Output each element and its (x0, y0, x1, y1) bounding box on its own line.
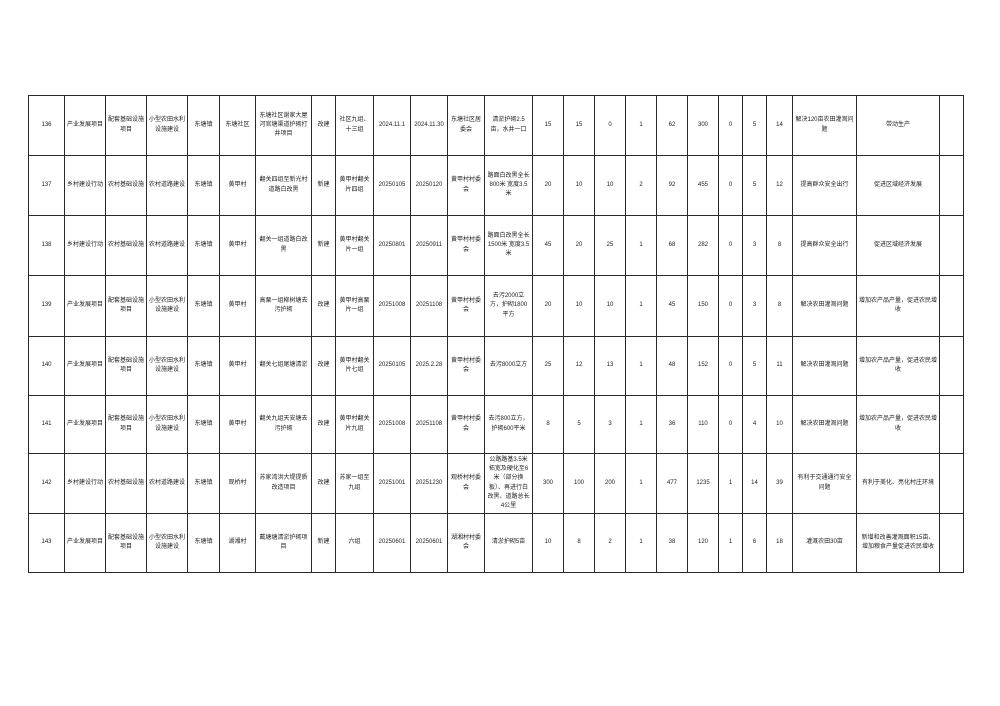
table-cell: 社区九组、十三组 (336, 96, 374, 156)
table-cell: 0 (719, 216, 743, 276)
table-cell: 翻关四组至新光村道路白改黑 (256, 156, 312, 216)
table-cell: 解决农田灌溉问题 (793, 276, 857, 337)
table-cell: 清淤护砌2.5亩，水井一口 (485, 96, 533, 156)
table-cell: 黄甲村村委会 (448, 337, 485, 396)
table-cell: 东塘镇 (188, 396, 220, 454)
table-cell: 14 (767, 96, 793, 156)
table-cell: 新建 (312, 514, 336, 573)
table-cell: 去污800立方，护砌600平米 (485, 396, 533, 454)
table-cell: 20251108 (411, 276, 448, 337)
table-row: 140产业发展项目配套基础设施项目小型农田水利设施建设东塘镇黄甲村翻关七组尾塘清… (29, 337, 964, 396)
table-cell: 有利于交通通行安全问题 (793, 454, 857, 514)
table-cell: 0 (719, 156, 743, 216)
table-cell: 0 (719, 396, 743, 454)
table-cell: 清淤护砌5亩 (485, 514, 533, 573)
table-cell: 152 (688, 337, 719, 396)
table-cell: 300 (688, 96, 719, 156)
table-cell: 乡村建设行动 (65, 216, 106, 276)
table-cell: 东塘社区谢家大屋河官塘渠道护砌打井项目 (256, 96, 312, 156)
table-cell: 5 (743, 96, 767, 156)
table-cell: 黄甲村村委会 (448, 276, 485, 337)
table-cell: 14 (743, 454, 767, 514)
table-cell: 黄甲村 (220, 156, 256, 216)
row-number-cell: 143 (29, 514, 65, 573)
table-cell: 戴塘塘清淤护砌项目 (256, 514, 312, 573)
table-cell: 1 (626, 454, 657, 514)
table-row: 136产业发展项目配套基础设施项目小型农田水利设施建设东塘镇东塘社区东塘社区谢家… (29, 96, 964, 156)
table-cell: 2 (595, 514, 626, 573)
table-cell: 3 (743, 276, 767, 337)
table-cell: 20250105 (374, 337, 411, 396)
table-cell: 翻关一组道路白改黑 (256, 216, 312, 276)
table-cell: 农村基础设施 (106, 454, 147, 514)
table-cell: 20 (533, 276, 564, 337)
table-cell: 配套基础设施项目 (106, 337, 147, 396)
table-cell: 0 (719, 337, 743, 396)
table-cell: 产业发展项目 (65, 396, 106, 454)
table-cell: 小型农田水利设施建设 (147, 396, 188, 454)
table-cell: 湖湘村 (220, 514, 256, 573)
table-cell (940, 276, 964, 337)
row-number-cell: 141 (29, 396, 65, 454)
table-cell: 0 (595, 96, 626, 156)
table-cell: 东塘社区 (220, 96, 256, 156)
table-cell: 200 (595, 454, 626, 514)
table-cell: 观桥村村委会 (448, 454, 485, 514)
table-cell: 3 (595, 396, 626, 454)
table-cell (940, 156, 964, 216)
table-cell: 提高群众安全出行 (793, 156, 857, 216)
table-cell: 有利于美化、亮化村庄环境 (857, 454, 940, 514)
table-row: 137乡村建设行动农村基础设施农村道路建设东塘镇黄甲村翻关四组至新光村道路白改黑… (29, 156, 964, 216)
table-cell: 20251008 (374, 396, 411, 454)
table-cell: 去污2000立方，护砌1800平方 (485, 276, 533, 337)
table-cell: 改建 (312, 276, 336, 337)
table-cell: 路面白改黑全长800米 宽度3.5米 (485, 156, 533, 216)
table-cell: 1 (626, 96, 657, 156)
table-row: 142乡村建设行动农村基础设施农村道路建设东塘镇观桥村苏家湾洪大堤提质改造项目改… (29, 454, 964, 514)
table-cell: 10 (564, 156, 595, 216)
table-cell: 提高群众安全出行 (793, 216, 857, 276)
table-cell: 12 (767, 156, 793, 216)
table-cell: 新建 (312, 156, 336, 216)
table-cell: 11 (767, 337, 793, 396)
row-number-cell: 136 (29, 96, 65, 156)
table-cell: 六组 (336, 514, 374, 573)
table-cell: 5 (743, 156, 767, 216)
table-cell: 477 (657, 454, 688, 514)
table-cell: 2024.11.1 (374, 96, 411, 156)
table-cell: 黄甲村村委会 (448, 156, 485, 216)
table-cell: 配套基础设施项目 (106, 96, 147, 156)
table-cell: 产业发展项目 (65, 96, 106, 156)
table-cell: 黄甲村 (220, 337, 256, 396)
table-cell: 黄甲村村委会 (448, 216, 485, 276)
table-cell: 282 (688, 216, 719, 276)
table-cell: 农村基础设施 (106, 156, 147, 216)
table-cell: 4 (743, 396, 767, 454)
table-cell: 东塘镇 (188, 96, 220, 156)
table-cell: 2025.2.28 (411, 337, 448, 396)
table-cell: 10 (595, 276, 626, 337)
document-page: 136产业发展项目配套基础设施项目小型农田水利设施建设东塘镇东塘社区东塘社区谢家… (0, 0, 1000, 706)
table-cell: 湖湘村村委会 (448, 514, 485, 573)
table-cell: 小型农田水利设施建设 (147, 514, 188, 573)
table-cell: 36 (657, 396, 688, 454)
table-cell: 45 (533, 216, 564, 276)
table-cell: 新增和改善灌溉面积15亩、增加粮食产量促进农民增收 (857, 514, 940, 573)
table-cell: 小型农田水利设施建设 (147, 276, 188, 337)
table-cell: 东塘镇 (188, 337, 220, 396)
table-cell: 促进区域经济发展 (857, 156, 940, 216)
row-number-cell: 139 (29, 276, 65, 337)
table-cell: 配套基础设施项目 (106, 514, 147, 573)
row-number-cell: 137 (29, 156, 65, 216)
table-cell: 3 (743, 216, 767, 276)
table-cell: 10 (767, 396, 793, 454)
row-number-cell: 142 (29, 454, 65, 514)
table-cell: 带动生产 (857, 96, 940, 156)
table-cell: 92 (657, 156, 688, 216)
table-cell: 20250911 (411, 216, 448, 276)
table-cell: 68 (657, 216, 688, 276)
table-row: 143产业发展项目配套基础设施项目小型农田水利设施建设东塘镇湖湘村戴塘塘清淤护砌… (29, 514, 964, 573)
table-cell: 6 (743, 514, 767, 573)
table-cell: 13 (595, 337, 626, 396)
table-cell: 10 (564, 276, 595, 337)
table-cell: 改建 (312, 337, 336, 396)
table-cell: 产业发展项目 (65, 514, 106, 573)
table-cell: 8 (564, 514, 595, 573)
table-cell: 1235 (688, 454, 719, 514)
table-cell: 20250601 (374, 514, 411, 573)
table-cell (940, 454, 964, 514)
table-cell: 去污8000立方 (485, 337, 533, 396)
table-cell: 东塘镇 (188, 156, 220, 216)
table-cell: 改建 (312, 454, 336, 514)
table-cell: 高栗一组柳树塘去污护砌 (256, 276, 312, 337)
table-cell: 东塘镇 (188, 454, 220, 514)
table-cell: 小型农田水利设施建设 (147, 96, 188, 156)
table-cell: 20251230 (411, 454, 448, 514)
table-cell: 增加农产品产量，促进农民增收 (857, 276, 940, 337)
table-cell: 20251108 (411, 396, 448, 454)
table-cell: 公路路基3.5米拓宽及硬化至6米（部分换板）、再进行白改黑、道路总长4公里 (485, 454, 533, 514)
table-cell: 62 (657, 96, 688, 156)
table-cell: 1 (626, 276, 657, 337)
table-cell: 黄甲村翻关片七组 (336, 337, 374, 396)
table-cell: 农村道路建设 (147, 216, 188, 276)
table-cell (940, 396, 964, 454)
table-cell: 小型农田水利设施建设 (147, 337, 188, 396)
table-cell: 100 (564, 454, 595, 514)
row-number-cell: 138 (29, 216, 65, 276)
table-row: 139产业发展项目配套基础设施项目小型农田水利设施建设东塘镇黄甲村高栗一组柳树塘… (29, 276, 964, 337)
table-cell: 10 (533, 514, 564, 573)
table-cell: 2024.11.30 (411, 96, 448, 156)
table-cell: 东塘镇 (188, 216, 220, 276)
table-cell: 苏家湾洪大堤提质改造项目 (256, 454, 312, 514)
table-cell: 黄甲村高栗片一组 (336, 276, 374, 337)
table-cell: 38 (657, 514, 688, 573)
table-cell: 5 (564, 396, 595, 454)
table-cell: 翻关九组天安塘去污护砌 (256, 396, 312, 454)
table-cell: 8 (533, 396, 564, 454)
table-cell: 黄甲村翻关片九组 (336, 396, 374, 454)
table-cell (940, 514, 964, 573)
table-cell: 增加农产品产量，促进农民增收 (857, 396, 940, 454)
table-cell: 0 (719, 276, 743, 337)
table-row: 141产业发展项目配套基础设施项目小型农田水利设施建设东塘镇黄甲村翻关九组天安塘… (29, 396, 964, 454)
table-cell: 1 (626, 337, 657, 396)
table-cell: 25 (533, 337, 564, 396)
table-cell: 改建 (312, 396, 336, 454)
table-cell: 300 (533, 454, 564, 514)
table-cell: 18 (767, 514, 793, 573)
table-cell: 39 (767, 454, 793, 514)
table-cell: 翻关七组尾塘清淤 (256, 337, 312, 396)
table-cell: 2 (626, 156, 657, 216)
project-table: 136产业发展项目配套基础设施项目小型农田水利设施建设东塘镇东塘社区东塘社区谢家… (28, 95, 964, 573)
table-cell: 东塘社区居委会 (448, 96, 485, 156)
table-cell: 产业发展项目 (65, 337, 106, 396)
table-cell: 配套基础设施项目 (106, 276, 147, 337)
row-number-cell: 140 (29, 337, 65, 396)
table-cell: 20 (564, 216, 595, 276)
table-cell: 观桥村 (220, 454, 256, 514)
table-cell: 乡村建设行动 (65, 454, 106, 514)
table-cell: 解决120亩农田灌溉问题 (793, 96, 857, 156)
table-cell: 15 (533, 96, 564, 156)
table-cell: 20250120 (411, 156, 448, 216)
table-cell: 1 (719, 514, 743, 573)
table-cell: 20250105 (374, 156, 411, 216)
table-cell: 黄甲村 (220, 216, 256, 276)
table-cell: 1 (719, 454, 743, 514)
table-cell: 黄甲村翻关片四组 (336, 156, 374, 216)
table-cell: 20251008 (374, 276, 411, 337)
table-cell: 灌溉农田30亩 (793, 514, 857, 573)
table-cell: 配套基础设施项目 (106, 396, 147, 454)
table-cell: 改建 (312, 96, 336, 156)
table-cell: 1 (626, 396, 657, 454)
table-cell: 0 (719, 96, 743, 156)
table-cell: 农村道路建设 (147, 454, 188, 514)
table-cell: 20251001 (374, 454, 411, 514)
table-cell: 120 (688, 514, 719, 573)
table-cell: 20250601 (411, 514, 448, 573)
table-cell: 455 (688, 156, 719, 216)
table-cell: 苏家一组至九组 (336, 454, 374, 514)
table-cell: 12 (564, 337, 595, 396)
table-cell: 农村基础设施 (106, 216, 147, 276)
table-cell: 黄甲村 (220, 276, 256, 337)
table-cell: 110 (688, 396, 719, 454)
table-cell: 25 (595, 216, 626, 276)
table-cell: 150 (688, 276, 719, 337)
table-cell: 解决农田灌溉问题 (793, 396, 857, 454)
table-cell: 1 (626, 216, 657, 276)
table-cell: 黄甲村村委会 (448, 396, 485, 454)
table-cell: 8 (767, 276, 793, 337)
table-cell (940, 216, 964, 276)
table-cell (940, 337, 964, 396)
table-cell: 20250801 (374, 216, 411, 276)
table-cell: 东塘镇 (188, 514, 220, 573)
table-cell: 解决农田灌溉问题 (793, 337, 857, 396)
table-cell: 产业发展项目 (65, 276, 106, 337)
table-cell: 15 (564, 96, 595, 156)
table-cell: 乡村建设行动 (65, 156, 106, 216)
table-cell: 东塘镇 (188, 276, 220, 337)
table-cell: 1 (626, 514, 657, 573)
table-cell: 5 (743, 337, 767, 396)
table-cell: 路面白改黑全长1500米 宽度3.5米 (485, 216, 533, 276)
table-cell (940, 96, 964, 156)
table-cell: 20 (533, 156, 564, 216)
table-cell: 48 (657, 337, 688, 396)
project-table-body: 136产业发展项目配套基础设施项目小型农田水利设施建设东塘镇东塘社区东塘社区谢家… (29, 96, 964, 573)
table-cell: 农村道路建设 (147, 156, 188, 216)
table-row: 138乡村建设行动农村基础设施农村道路建设东塘镇黄甲村翻关一组道路白改黑新建黄甲… (29, 216, 964, 276)
table-cell: 45 (657, 276, 688, 337)
table-cell: 新建 (312, 216, 336, 276)
table-cell: 促进区域经济发展 (857, 216, 940, 276)
table-cell: 增加农产品产量，促进农民增收 (857, 337, 940, 396)
table-cell: 8 (767, 216, 793, 276)
table-cell: 10 (595, 156, 626, 216)
table-cell: 黄甲村 (220, 396, 256, 454)
table-cell: 黄甲村翻关片一组 (336, 216, 374, 276)
